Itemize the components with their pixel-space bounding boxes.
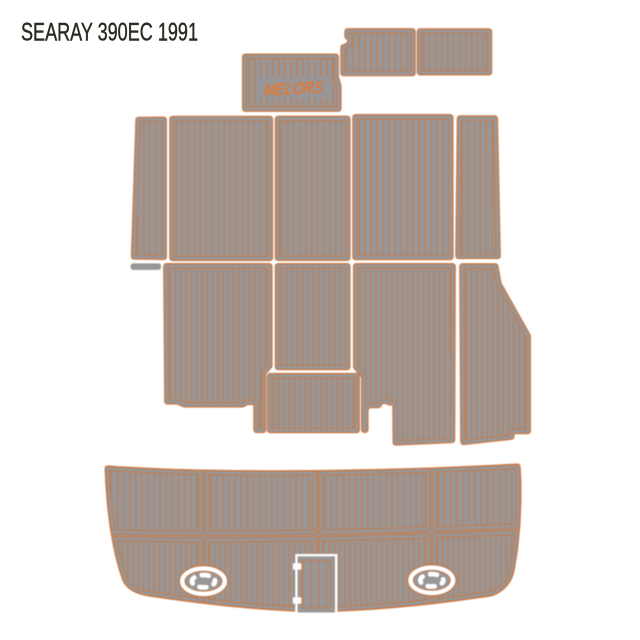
svg-text:SEARAY 390EC 1991: SEARAY 390EC 1991 bbox=[21, 19, 198, 47]
svg-text:MELORS: MELORS bbox=[262, 78, 324, 100]
